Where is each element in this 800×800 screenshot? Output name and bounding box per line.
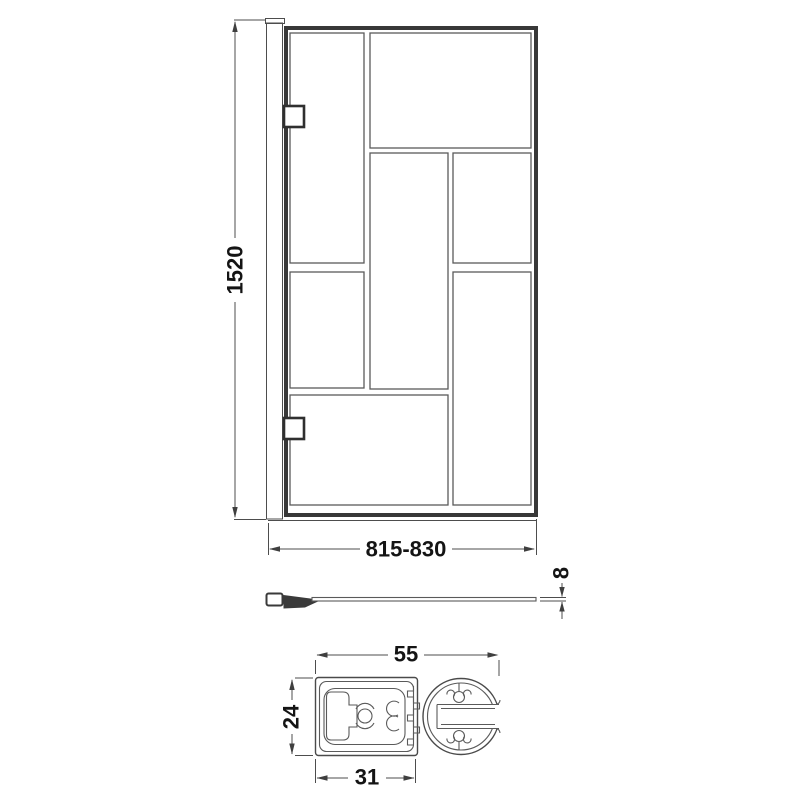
glass-panel — [453, 272, 531, 505]
width-dimension-label: 815-830 — [366, 537, 447, 562]
wall-profile-section — [267, 594, 283, 606]
drawing-canvas: 1520 815-830 8 — [0, 0, 800, 800]
height-dimension-label: 1520 — [223, 246, 248, 295]
glass-panel — [290, 33, 364, 263]
wall-profile-bar — [267, 23, 283, 519]
hinge-top — [284, 106, 304, 127]
glass-panel — [453, 153, 531, 263]
hinge-bottom — [284, 418, 304, 439]
glass-panel — [370, 33, 531, 148]
plan-view: 8 — [267, 567, 574, 619]
glass-panel — [290, 272, 364, 388]
section-inner-width-dimension: 31 — [316, 759, 416, 790]
section-view: 55 24 31 — [279, 642, 503, 790]
section-height-label: 24 — [279, 704, 304, 729]
glass-panel — [290, 395, 448, 505]
section-inner-width-label: 31 — [355, 765, 379, 790]
section-width-label: 55 — [394, 642, 418, 667]
section-height-dimension: 24 — [279, 678, 314, 756]
front-view: 1520 815-830 — [223, 19, 538, 562]
section-width-dimension: 55 — [316, 642, 500, 677]
glass-section — [312, 598, 536, 602]
glass-thickness-label: 8 — [549, 567, 574, 579]
hinge-barrel-section — [423, 679, 502, 755]
width-dimension: 815-830 — [269, 519, 537, 562]
shower-screen-technical-drawing: 1520 815-830 8 — [0, 0, 800, 800]
glass-panel — [370, 153, 448, 389]
glass-thickness-dimension: 8 — [540, 567, 574, 619]
channel-profile-section — [316, 678, 420, 756]
height-dimension: 1520 — [223, 20, 267, 520]
